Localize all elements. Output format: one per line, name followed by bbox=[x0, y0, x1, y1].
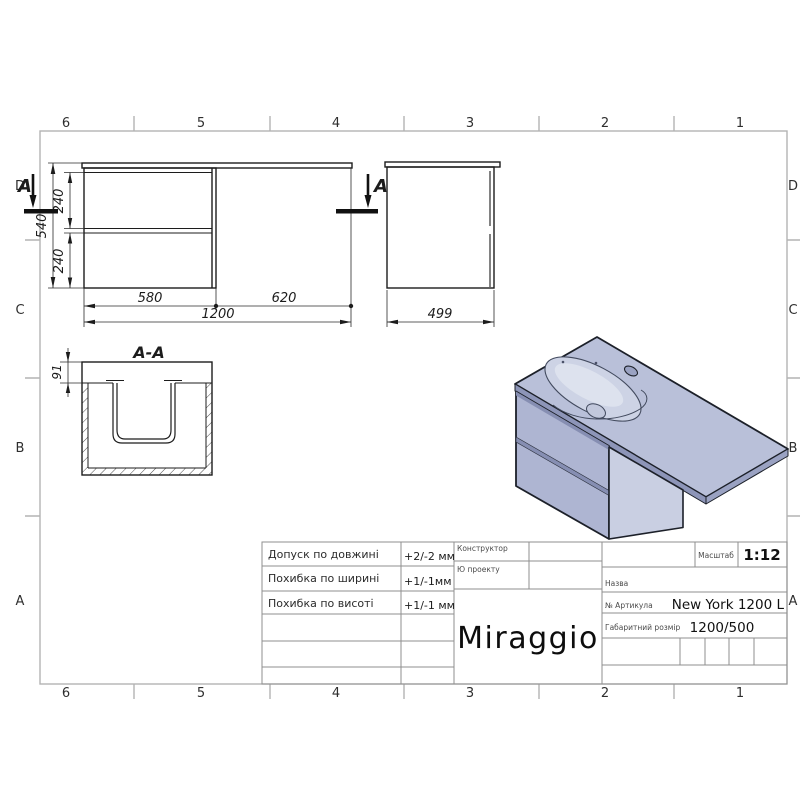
left-zone-ticks bbox=[25, 240, 40, 516]
tolerance-table: Допуск по довжині +2/-2 мм Похибка по ши… bbox=[268, 548, 455, 612]
zone-row-label: C bbox=[788, 303, 797, 318]
bottom-zone-ticks bbox=[134, 684, 674, 699]
section-outer-box bbox=[82, 362, 212, 475]
zone-col-label: 1 bbox=[736, 686, 744, 701]
scale-label: Масштаб bbox=[698, 551, 734, 560]
front-dim-arrows bbox=[51, 163, 353, 324]
zone-row-label: B bbox=[16, 441, 25, 456]
tolerance-value: +1/-1 мм bbox=[404, 599, 455, 612]
dim-499: 499 bbox=[428, 307, 453, 322]
section-letter-right: A bbox=[372, 176, 388, 197]
dim-1200: 1200 bbox=[201, 307, 234, 322]
zone-col-label: 6 bbox=[62, 116, 70, 131]
tolerance-value: +1/-1мм bbox=[404, 575, 452, 588]
zone-col-label: 2 bbox=[601, 686, 609, 701]
name-label: Назва bbox=[605, 579, 628, 588]
drawing-sheet: 6 5 4 3 2 1 6 5 4 3 2 1 D C B A D C B A bbox=[0, 0, 800, 800]
section-wall-left bbox=[82, 383, 88, 475]
iso-3d-view bbox=[515, 337, 788, 539]
zone-col-label: 1 bbox=[736, 116, 744, 131]
tolerance-label: Похибка по ширині bbox=[268, 572, 379, 585]
section-letter-left: A bbox=[16, 176, 32, 197]
article-value: New York 1200 L bbox=[672, 597, 785, 613]
zone-col-label: 4 bbox=[332, 116, 340, 131]
front-countertop bbox=[82, 163, 352, 168]
title-block-grid bbox=[262, 542, 787, 684]
scale-value: 1:12 bbox=[743, 546, 780, 564]
section-basin-inner bbox=[117, 383, 171, 439]
side-view: 499 bbox=[385, 162, 500, 327]
zone-col-label: 5 bbox=[197, 686, 205, 701]
top-zone-ticks bbox=[134, 116, 674, 131]
zone-row-label: D bbox=[788, 179, 798, 194]
zone-row-label: A bbox=[16, 594, 25, 609]
zone-col-label: 3 bbox=[466, 116, 474, 131]
front-view: 540 240 240 580 620 1200 A A bbox=[16, 163, 388, 327]
zone-col-label: 4 bbox=[332, 686, 340, 701]
designer-label: Конструктор bbox=[457, 544, 508, 553]
tolerance-label: Похибка по висоті bbox=[268, 597, 374, 610]
section-bar-right bbox=[336, 209, 378, 214]
right-zone-ticks bbox=[787, 240, 800, 516]
size-label: Габаритний розмір bbox=[605, 623, 681, 632]
zone-row-label: B bbox=[789, 441, 798, 456]
dim-540: 540 bbox=[35, 214, 50, 239]
cad-drawing-canvas: 6 5 4 3 2 1 6 5 4 3 2 1 D C B A D C B A bbox=[0, 0, 800, 800]
zone-row-label: C bbox=[15, 303, 24, 318]
iso-fixing-dot-1 bbox=[562, 361, 565, 364]
title-block: Допуск по довжині +2/-2 мм Похибка по ши… bbox=[262, 542, 787, 684]
section-arrowhead-right bbox=[365, 195, 372, 208]
zone-row-label: A bbox=[789, 594, 798, 609]
section-bar-left bbox=[24, 209, 58, 214]
section-wall-right bbox=[206, 383, 212, 475]
zone-col-label: 3 bbox=[466, 686, 474, 701]
section-view: A-A 91 bbox=[50, 343, 212, 475]
section-title: A-A bbox=[131, 343, 164, 362]
zone-col-label: 6 bbox=[62, 686, 70, 701]
side-countertop bbox=[385, 162, 500, 167]
brand-logo: Miraggio bbox=[457, 621, 599, 656]
dim-91: 91 bbox=[50, 364, 64, 379]
dim-240-bottom: 240 bbox=[52, 249, 67, 274]
zone-col-label: 2 bbox=[601, 116, 609, 131]
section-wall-bottom bbox=[88, 468, 206, 475]
article-label: № Артикула bbox=[605, 601, 653, 610]
size-value: 1200/500 bbox=[690, 620, 755, 636]
tolerance-label: Допуск по довжині bbox=[268, 548, 379, 561]
dim-580: 580 bbox=[138, 291, 163, 306]
zone-col-label: 5 bbox=[197, 116, 205, 131]
section-hatching bbox=[82, 383, 212, 475]
section-cut-marks: A A bbox=[16, 174, 388, 214]
side-cabinet-body bbox=[387, 167, 494, 288]
iso-fixing-dot-2 bbox=[595, 362, 598, 365]
front-extension-lines bbox=[48, 163, 351, 327]
project-id-label: Ю проекту bbox=[457, 565, 500, 574]
dim-620: 620 bbox=[272, 291, 297, 306]
tolerance-value: +2/-2 мм bbox=[404, 550, 455, 563]
section-basin-outer bbox=[113, 383, 175, 443]
